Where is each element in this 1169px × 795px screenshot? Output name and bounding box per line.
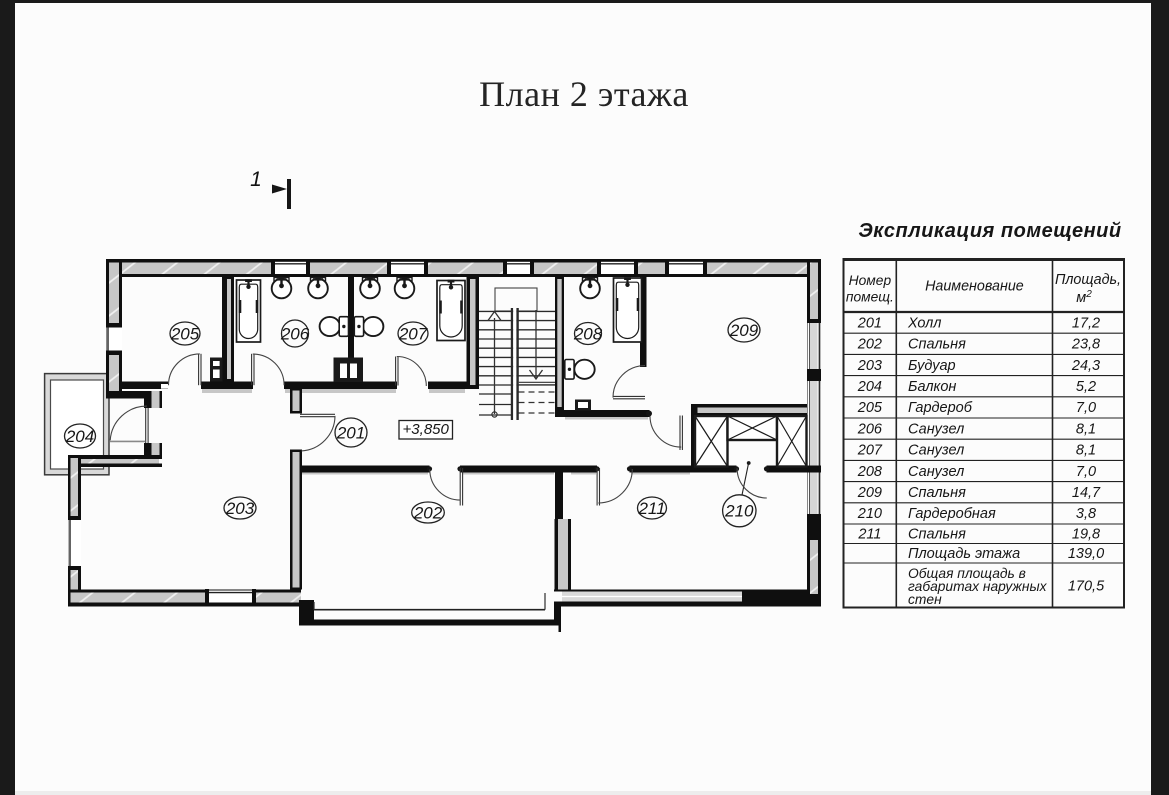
svg-text:Гардеробная: Гардеробная bbox=[908, 506, 996, 522]
svg-text:24,3: 24,3 bbox=[1071, 358, 1100, 374]
svg-text:207: 207 bbox=[857, 443, 883, 459]
svg-text:205: 205 bbox=[170, 324, 200, 343]
svg-text:+3,850: +3,850 bbox=[403, 421, 450, 438]
svg-text:202: 202 bbox=[413, 503, 443, 522]
svg-text:211: 211 bbox=[857, 527, 881, 543]
svg-text:204: 204 bbox=[65, 427, 94, 446]
svg-text:139,0: 139,0 bbox=[1068, 546, 1104, 562]
svg-text:стен: стен bbox=[908, 592, 942, 607]
svg-text:Гардероб: Гардероб bbox=[908, 400, 973, 416]
svg-text:Балкон: Балкон bbox=[908, 379, 956, 395]
svg-text:Будуар: Будуар bbox=[908, 358, 956, 374]
svg-text:201: 201 bbox=[857, 315, 882, 331]
svg-text:1: 1 bbox=[250, 168, 262, 191]
svg-text:Экспликация помещений: Экспликация помещений bbox=[858, 220, 1121, 242]
svg-text:помещ.: помещ. bbox=[846, 290, 894, 305]
svg-text:205: 205 bbox=[857, 400, 883, 416]
svg-text:8,1: 8,1 bbox=[1076, 421, 1096, 437]
svg-text:203: 203 bbox=[857, 358, 882, 374]
svg-text:Номер: Номер bbox=[849, 273, 892, 288]
svg-text:17,2: 17,2 bbox=[1072, 315, 1100, 331]
svg-text:3,8: 3,8 bbox=[1076, 506, 1096, 522]
svg-text:209: 209 bbox=[729, 321, 759, 340]
svg-text:208: 208 bbox=[857, 464, 882, 480]
svg-text:210: 210 bbox=[857, 506, 882, 522]
svg-text:206: 206 bbox=[280, 324, 310, 343]
svg-text:5,2: 5,2 bbox=[1076, 379, 1096, 395]
svg-text:Санузел: Санузел bbox=[908, 443, 964, 459]
svg-text:7,0: 7,0 bbox=[1076, 400, 1096, 416]
svg-text:Спальня: Спальня bbox=[908, 337, 966, 353]
svg-text:211: 211 bbox=[637, 499, 665, 518]
svg-text:Наименование: Наименование bbox=[925, 279, 1024, 295]
svg-text:План 2 этажа: План 2 этажа bbox=[479, 74, 689, 114]
svg-text:Холл: Холл bbox=[907, 315, 941, 331]
svg-text:Спальня: Спальня bbox=[908, 527, 966, 543]
svg-text:202: 202 bbox=[857, 337, 882, 353]
svg-text:201: 201 bbox=[336, 423, 365, 442]
svg-text:170,5: 170,5 bbox=[1068, 579, 1105, 595]
svg-text:Площадь этажа: Площадь этажа bbox=[908, 546, 1020, 562]
svg-text:206: 206 bbox=[857, 421, 883, 437]
svg-text:14,7: 14,7 bbox=[1072, 485, 1101, 501]
svg-text:210: 210 bbox=[724, 502, 754, 521]
svg-text:23,8: 23,8 bbox=[1071, 337, 1100, 353]
svg-text:Санузел: Санузел bbox=[908, 464, 964, 480]
svg-text:209: 209 bbox=[857, 485, 882, 501]
svg-text:203: 203 bbox=[225, 499, 255, 518]
svg-text:207: 207 bbox=[398, 324, 428, 343]
svg-text:Спальня: Спальня bbox=[908, 485, 966, 501]
svg-text:19,8: 19,8 bbox=[1072, 527, 1100, 543]
svg-text:8,1: 8,1 bbox=[1076, 443, 1096, 459]
svg-text:208: 208 bbox=[573, 324, 603, 343]
svg-text:Санузел: Санузел bbox=[908, 421, 964, 437]
svg-text:7,0: 7,0 bbox=[1076, 464, 1096, 480]
svg-text:204: 204 bbox=[857, 379, 882, 395]
svg-text:Площадь,: Площадь, bbox=[1055, 272, 1121, 288]
